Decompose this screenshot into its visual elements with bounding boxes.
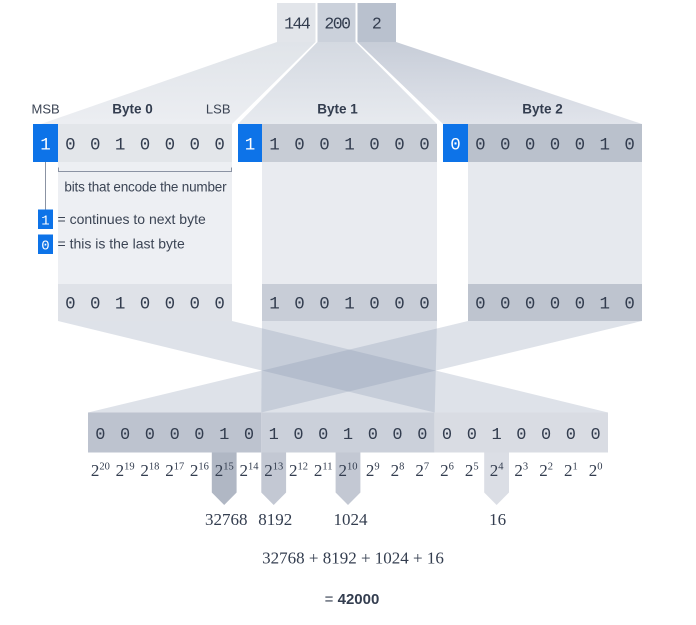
svg-text:0: 0 (145, 426, 155, 445)
svg-text:0: 0 (368, 426, 378, 445)
svg-text:0: 0 (189, 295, 200, 315)
svg-text:0: 0 (450, 135, 461, 155)
svg-text:8192: 8192 (258, 510, 292, 529)
svg-text:0: 0 (467, 426, 477, 445)
svg-text:0: 0 (41, 238, 49, 254)
svg-text:1: 1 (115, 295, 126, 315)
svg-text:0: 0 (369, 295, 380, 315)
svg-text:0: 0 (294, 295, 305, 315)
svg-text:MSB: MSB (32, 102, 60, 117)
svg-text:Byte 2: Byte 2 (522, 102, 563, 117)
svg-text:0: 0 (244, 426, 254, 445)
svg-text:0: 0 (214, 135, 225, 155)
svg-text:0: 0 (516, 426, 526, 445)
svg-text:0: 0 (90, 295, 101, 315)
svg-text:1: 1 (599, 295, 610, 315)
svg-text:16: 16 (489, 510, 506, 529)
svg-text:0: 0 (419, 135, 430, 155)
svg-text:0: 0 (318, 426, 328, 445)
svg-text:0: 0 (590, 426, 600, 445)
svg-text:0: 0 (550, 135, 561, 155)
svg-text:0: 0 (95, 426, 105, 445)
svg-text:1: 1 (245, 135, 256, 155)
svg-text:0: 0 (500, 135, 511, 155)
svg-text:0: 0 (189, 135, 200, 155)
svg-text:0: 0 (525, 135, 536, 155)
svg-text:32768: 32768 (205, 510, 248, 529)
svg-text:0: 0 (294, 135, 305, 155)
svg-text:0: 0 (341, 14, 351, 33)
svg-text:0: 0 (65, 295, 76, 315)
svg-text:0: 0 (500, 295, 511, 315)
svg-text:0: 0 (419, 295, 430, 315)
svg-text:4: 4 (301, 14, 311, 33)
svg-text:= 42000: = 42000 (325, 591, 380, 608)
svg-text:1: 1 (269, 135, 280, 155)
svg-text:0: 0 (293, 426, 303, 445)
svg-text:0: 0 (566, 426, 576, 445)
svg-text:0: 0 (550, 295, 561, 315)
svg-text:LSB: LSB (206, 102, 231, 117)
svg-text:0: 0 (319, 135, 330, 155)
svg-text:2: 2 (372, 14, 382, 33)
svg-text:0: 0 (392, 426, 402, 445)
svg-text:Byte 0: Byte 0 (112, 102, 153, 117)
svg-text:0: 0 (65, 135, 76, 155)
svg-text:bits that encode the number: bits that encode the number (64, 180, 227, 195)
svg-text:0: 0 (170, 426, 180, 445)
svg-text:1: 1 (269, 426, 279, 445)
svg-text:0: 0 (319, 295, 330, 315)
svg-text:= continues to next byte: = continues to next byte (58, 211, 206, 227)
svg-text:0: 0 (525, 295, 536, 315)
svg-text:0: 0 (575, 135, 586, 155)
svg-text:1: 1 (491, 426, 501, 445)
svg-text:0: 0 (394, 295, 405, 315)
svg-text:0: 0 (442, 426, 452, 445)
svg-text:0: 0 (475, 295, 486, 315)
svg-text:0: 0 (417, 426, 427, 445)
svg-text:Byte 1: Byte 1 (317, 102, 358, 117)
svg-text:1: 1 (219, 426, 229, 445)
svg-text:0: 0 (475, 135, 486, 155)
svg-text:0: 0 (624, 295, 635, 315)
svg-text:= this is the last byte: = this is the last byte (58, 236, 185, 252)
svg-text:0: 0 (120, 426, 130, 445)
svg-text:0: 0 (194, 426, 204, 445)
svg-text:0: 0 (140, 295, 151, 315)
svg-text:0: 0 (140, 135, 151, 155)
svg-text:0: 0 (541, 426, 551, 445)
svg-text:0: 0 (165, 295, 176, 315)
svg-text:1: 1 (599, 135, 610, 155)
svg-text:0: 0 (394, 135, 405, 155)
svg-text:0: 0 (624, 135, 635, 155)
svg-text:0: 0 (90, 135, 101, 155)
svg-text:1: 1 (343, 426, 353, 445)
svg-text:32768 + 8192 + 1024 + 16: 32768 + 8192 + 1024 + 16 (262, 549, 444, 568)
svg-text:1: 1 (269, 295, 280, 315)
svg-text:0: 0 (575, 295, 586, 315)
svg-text:1024: 1024 (334, 510, 369, 529)
svg-text:1: 1 (41, 213, 49, 229)
svg-text:1: 1 (344, 135, 355, 155)
svg-text:0: 0 (214, 295, 225, 315)
svg-text:0: 0 (369, 135, 380, 155)
svg-text:1: 1 (344, 295, 355, 315)
svg-text:1: 1 (40, 135, 51, 155)
svg-text:1: 1 (115, 135, 126, 155)
svg-text:0: 0 (165, 135, 176, 155)
